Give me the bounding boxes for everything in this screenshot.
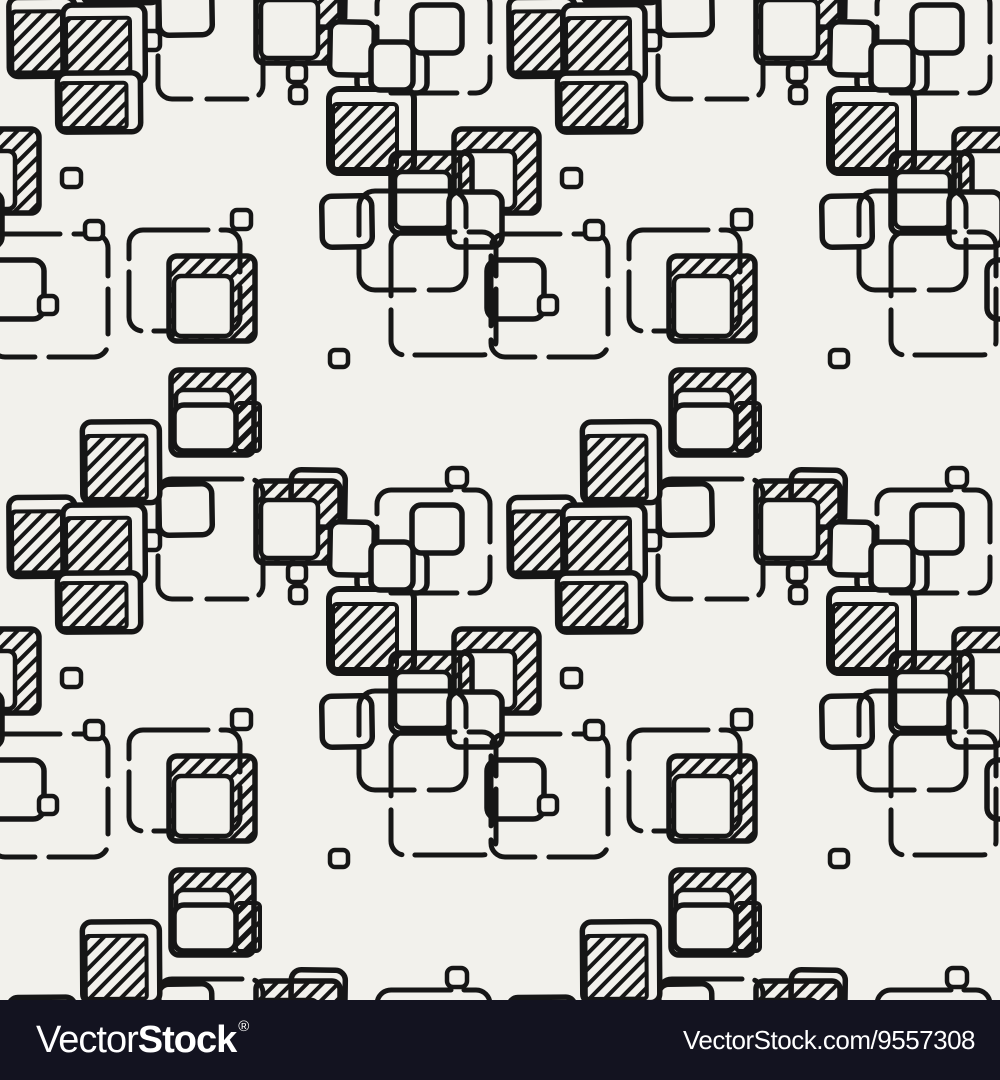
squares-pattern-artwork (0, 0, 1000, 1080)
image-reference-url: VectorStock.com/9557308 (683, 1025, 975, 1056)
vectorstock-logo: VectorStock® (36, 1021, 248, 1059)
watermark-bar: VectorStock® VectorStock.com/9557308 (0, 1000, 1000, 1080)
registered-trademark-symbol: ® (238, 1019, 248, 1034)
brand-name-bold: Stock (138, 1021, 236, 1059)
brand-name-light: Vector (36, 1021, 138, 1059)
stock-image-preview: VectorStock® VectorStock.com/9557308 (0, 0, 1000, 1080)
